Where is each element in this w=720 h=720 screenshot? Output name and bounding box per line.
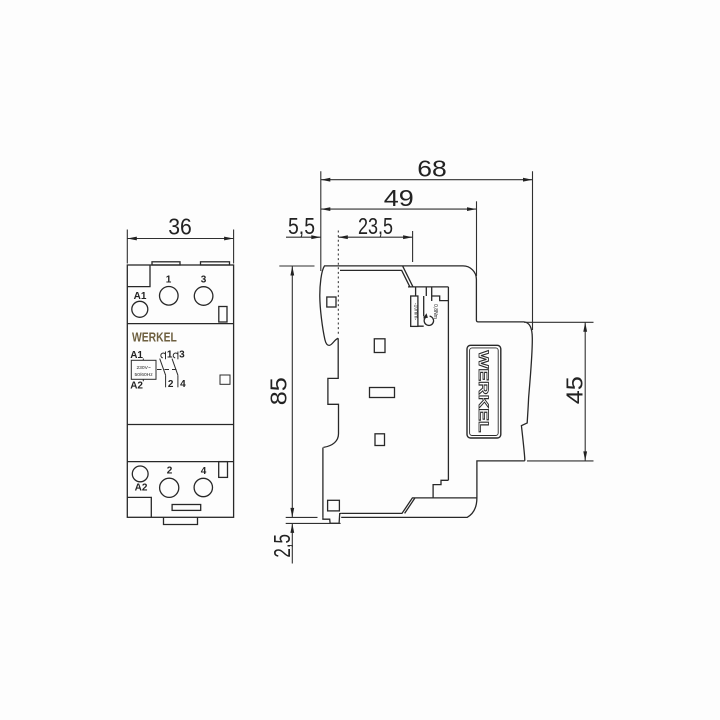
svg-text:2: 2 <box>167 466 173 477</box>
svg-text:23,5: 23,5 <box>358 213 393 239</box>
svg-text:4: 4 <box>201 466 207 477</box>
svg-text:49: 49 <box>384 185 414 211</box>
svg-text:A1: A1 <box>130 350 143 361</box>
svg-text:WERKEL: WERKEL <box>476 351 492 434</box>
svg-text:A2: A2 <box>135 483 148 494</box>
svg-text:85: 85 <box>265 377 291 405</box>
svg-text:36: 36 <box>168 214 192 240</box>
svg-text:0,8Nm: 0,8Nm <box>432 304 438 319</box>
svg-text:2: 2 <box>168 379 174 390</box>
svg-text:50/60Hz: 50/60Hz <box>134 372 153 378</box>
svg-text:230V~: 230V~ <box>136 365 150 371</box>
svg-text:1: 1 <box>167 349 173 360</box>
svg-text:WERKEL: WERKEL <box>132 331 177 345</box>
svg-text:3: 3 <box>201 275 207 286</box>
svg-text:5,5: 5,5 <box>288 213 315 239</box>
svg-text:45: 45 <box>561 376 587 404</box>
svg-text:68: 68 <box>417 155 447 181</box>
svg-text:-10mm-: -10mm- <box>413 303 419 321</box>
svg-text:A1: A1 <box>134 291 147 302</box>
svg-text:2,5: 2,5 <box>269 534 295 558</box>
svg-text:1: 1 <box>166 275 172 286</box>
svg-text:A2: A2 <box>130 381 143 392</box>
svg-text:4: 4 <box>180 379 186 390</box>
svg-text:3: 3 <box>179 349 185 360</box>
